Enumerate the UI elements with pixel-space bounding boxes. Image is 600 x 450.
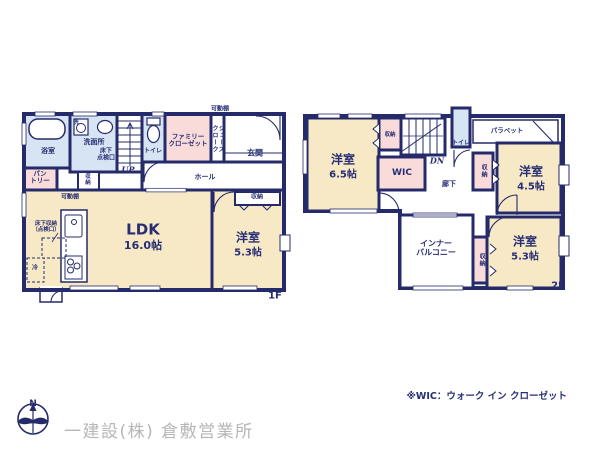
bedroom-storage-box (235, 192, 280, 205)
floorplan-canvas: 可動棚 浴室 洗 洗面所 床下 点検口 UP トイレ ファミリー クローゼット … (0, 0, 600, 450)
floor2-geometry (303, 102, 567, 292)
floor-1f: 可動棚 浴室 洗 洗面所 床下 点検口 UP トイレ ファミリー クローゼット … (22, 112, 286, 304)
compass-icon: N (13, 393, 53, 439)
wic-note: ※WIC：ウォーク イン クローゼット (407, 388, 567, 402)
floor-2f: 洋室 6.5帖 収納 DN トイレ パラペット WIC 廊下 収納 洋室 4.5… (303, 102, 567, 292)
company-name: 一建設(株) 倉敷営業所 (64, 417, 254, 442)
floor1-geometry (22, 112, 286, 304)
